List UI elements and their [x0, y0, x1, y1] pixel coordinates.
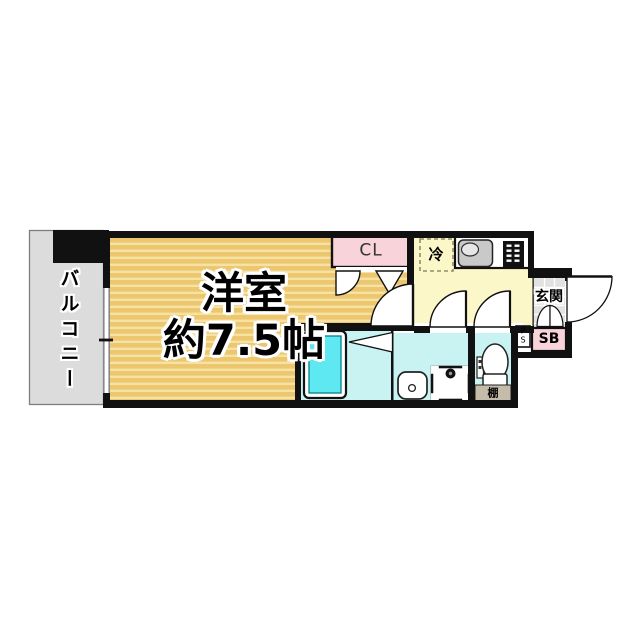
balcony-label: バルコニー [59, 269, 78, 394]
washing-machine-pan-icon [431, 366, 470, 401]
stove-icon [503, 241, 524, 267]
main-room-label: 洋室 約7.5帖 [163, 271, 325, 365]
pipe-space-s: S [520, 336, 525, 345]
entrance-label: 玄関 [535, 290, 563, 304]
kitchen-counter [455, 236, 531, 268]
sink-icon [459, 240, 493, 267]
main-room-name: 洋室 [163, 271, 325, 318]
floor-plan: バルコニー 洋室 約7.5帖 CL 冷 玄関 SB P S 棚 [0, 0, 640, 640]
washbasin-icon [398, 372, 427, 399]
main-room-size: 約7.5帖 [163, 318, 325, 365]
shoe-box-label: SB [539, 332, 560, 346]
shelf-label: 棚 [488, 388, 499, 399]
closet-label: CL [359, 243, 382, 260]
refrigerator-label: 冷 [428, 248, 443, 263]
pipe-space-label: P S [520, 328, 525, 345]
entrance-step-edge [532, 278, 534, 327]
entrance-door-swing [567, 277, 612, 323]
